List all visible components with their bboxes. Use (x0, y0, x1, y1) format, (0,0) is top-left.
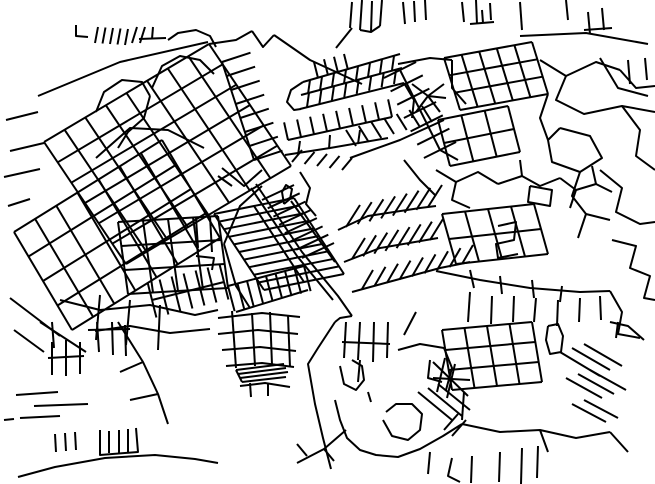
street-segment (287, 82, 303, 110)
street-segment (349, 108, 353, 126)
street-segment (332, 86, 334, 100)
street-segment (449, 59, 537, 75)
street-segment (520, 2, 522, 30)
street-segment (270, 312, 272, 365)
street-segment (118, 222, 128, 294)
street-segment (222, 53, 251, 62)
street-segment (95, 27, 98, 43)
street-segment (428, 452, 430, 474)
street-segment (479, 52, 495, 104)
street-segment (184, 274, 188, 292)
street-segment (200, 288, 204, 306)
street-segment (76, 25, 88, 37)
street-segment (305, 152, 315, 164)
street-segment (592, 166, 596, 184)
street-segment (566, 0, 568, 20)
street-segment (120, 362, 143, 372)
street-segment (588, 12, 590, 34)
street-segment (520, 160, 522, 176)
street-segment (29, 165, 177, 257)
street-segment (510, 324, 520, 384)
street-segment (332, 73, 334, 87)
street-segment (498, 176, 560, 186)
street-segment (371, 122, 381, 138)
street-segment (14, 140, 162, 232)
street-segment (20, 416, 60, 418)
street-segment (540, 94, 548, 140)
street-segment (407, 75, 423, 83)
street-segment (152, 27, 153, 39)
street-segment (34, 404, 88, 406)
street-segment (471, 456, 472, 483)
street-segment (528, 186, 552, 206)
street-segment (250, 383, 251, 397)
street-segment (335, 400, 462, 457)
street-segment (48, 356, 84, 358)
map-viewport (0, 0, 655, 484)
street-segment (417, 137, 433, 145)
street-segment (425, 0, 426, 20)
street-segment (513, 296, 514, 322)
street-segment (344, 83, 346, 97)
street-segment (534, 298, 536, 322)
street-segment (450, 152, 520, 166)
street-segment (436, 170, 498, 184)
street-segment (645, 58, 647, 80)
street-segment (196, 271, 200, 289)
street-segment (212, 285, 216, 303)
street-segment (330, 156, 340, 168)
street-segment (252, 31, 274, 47)
street-segment (600, 170, 655, 224)
street-segment (612, 240, 655, 300)
street-segment (455, 77, 543, 93)
street-segment (586, 214, 610, 220)
street-segment (428, 84, 444, 96)
street-segment (368, 63, 370, 77)
street-segment (428, 96, 440, 112)
street-segment (220, 265, 224, 283)
street-segment (158, 305, 160, 350)
street-segment (566, 62, 620, 76)
street-segment (476, 0, 477, 24)
street-segment (387, 322, 388, 358)
street-network-svg (0, 0, 655, 484)
street-segment (222, 347, 296, 351)
street-segment (388, 99, 392, 117)
street-segment (210, 216, 212, 252)
street-segment (375, 102, 379, 120)
street-segment (8, 199, 30, 206)
street-segment (622, 106, 655, 170)
street-segment (452, 182, 470, 208)
street-segment (344, 322, 346, 358)
street-segment (537, 446, 538, 478)
street-segment (422, 106, 432, 122)
street-segment (520, 33, 648, 44)
street-segment (532, 42, 548, 94)
street-segment (358, 322, 360, 360)
street-segment (369, 77, 371, 91)
street-segment (497, 48, 513, 100)
street-segment (380, 59, 382, 73)
street-segment (362, 105, 366, 123)
street-segment (462, 245, 473, 264)
street-segment (308, 322, 335, 469)
street-segment (600, 58, 648, 96)
street-segment (452, 60, 466, 104)
street-segment (572, 404, 606, 422)
street-segment (521, 448, 522, 484)
street-segment (342, 158, 352, 170)
street-segment (572, 348, 610, 370)
street-segment (245, 123, 274, 132)
street-segment (103, 28, 106, 44)
street-segment (164, 297, 168, 315)
street-segment (6, 112, 38, 120)
street-segment (462, 2, 464, 22)
street-segment (75, 432, 76, 450)
street-segment (371, 1, 372, 32)
street-segment (444, 42, 532, 58)
street-segment (236, 95, 265, 104)
street-segment (584, 400, 618, 418)
street-segment (514, 45, 530, 97)
street-segment (500, 276, 502, 294)
street-segment (307, 93, 309, 107)
street-segment (566, 378, 602, 398)
street-segment (288, 315, 290, 367)
street-segment (380, 0, 382, 26)
street-segment (236, 370, 242, 382)
street-segment (340, 360, 364, 390)
street-segment (602, 8, 604, 30)
street-segment (448, 458, 460, 482)
street-segment (176, 294, 180, 312)
street-segment (112, 322, 113, 355)
street-segment (18, 455, 218, 477)
street-segment (55, 434, 56, 452)
street-segment (88, 329, 130, 330)
street-segment (620, 70, 655, 88)
street-segment (578, 374, 614, 394)
street-segment (4, 169, 40, 177)
street-segment (65, 433, 66, 451)
street-segment (329, 135, 330, 149)
street-segment (10, 143, 44, 151)
street-segment (590, 370, 626, 390)
street-segment (397, 97, 413, 105)
street-segment (310, 117, 314, 135)
street-segment (335, 316, 352, 322)
street-segment (404, 160, 436, 196)
street-segment (232, 311, 236, 368)
street-segment (404, 312, 416, 335)
street-segment (610, 291, 640, 338)
street-segment (576, 184, 612, 192)
street-segment (209, 31, 252, 44)
street-segment (491, 296, 492, 324)
street-segment (487, 326, 497, 386)
street-segment (548, 128, 602, 172)
street-segment (297, 120, 301, 138)
street-segment (444, 129, 514, 143)
street-segment (579, 298, 580, 322)
street-segment (398, 344, 444, 350)
street-segment (140, 27, 145, 43)
street-segment (560, 286, 562, 302)
street-segment (344, 54, 348, 70)
street-segment (428, 96, 446, 98)
street-segment (208, 268, 212, 286)
street-segment (557, 300, 558, 326)
street-segment (218, 330, 298, 334)
street-segment (336, 28, 352, 48)
street-segment (350, 2, 352, 28)
street-segment (368, 392, 371, 402)
street-segment (152, 300, 156, 318)
street-segment (125, 29, 128, 45)
street-segment (285, 271, 292, 296)
street-segment (584, 28, 612, 30)
street-segment (600, 296, 601, 320)
street-segment (356, 66, 358, 80)
street-segment (130, 394, 158, 400)
street-segment (540, 430, 548, 452)
street-segment (132, 27, 137, 43)
street-segment (97, 322, 99, 352)
street-segment (360, 0, 362, 30)
street-segment (252, 313, 255, 366)
street-segment (160, 280, 164, 298)
street-segment (373, 322, 374, 362)
street-segment (428, 388, 462, 416)
street-segment (532, 322, 542, 382)
street-segment (403, 2, 405, 24)
street-segment (424, 150, 440, 158)
street-segment (462, 424, 610, 438)
street-segment (499, 452, 500, 482)
street-segment (118, 29, 121, 45)
street-segment (188, 291, 192, 309)
street-segment (433, 378, 470, 380)
street-segment (240, 383, 290, 387)
street-segment (342, 342, 390, 344)
street-segment (414, 1, 415, 22)
street-segment (382, 73, 384, 87)
street-segment (319, 90, 321, 104)
street-segment (110, 28, 113, 44)
street-segment (4, 419, 14, 420)
street-segment (468, 292, 470, 322)
street-segment (360, 26, 380, 32)
street-segment (323, 114, 327, 132)
street-segment (462, 55, 478, 107)
street-segment (610, 432, 628, 452)
street-segment (436, 271, 610, 292)
street-segment (16, 392, 58, 395)
street-segment (490, 3, 491, 20)
street-segment (383, 404, 422, 440)
street-segment (317, 154, 327, 166)
street-segment (572, 172, 586, 238)
street-segment (14, 330, 44, 352)
street-segment (482, 10, 483, 23)
street-segment (384, 118, 394, 134)
street-segment (584, 344, 622, 366)
street-segment (392, 56, 394, 70)
street-segment (247, 281, 254, 306)
street-segment (336, 111, 340, 129)
street-segment (546, 324, 563, 354)
street-segment (297, 444, 307, 456)
street-segment (284, 122, 288, 140)
street-segment (236, 290, 308, 312)
street-segment (285, 138, 388, 155)
street-segment (227, 67, 256, 76)
street-segment (532, 280, 534, 298)
